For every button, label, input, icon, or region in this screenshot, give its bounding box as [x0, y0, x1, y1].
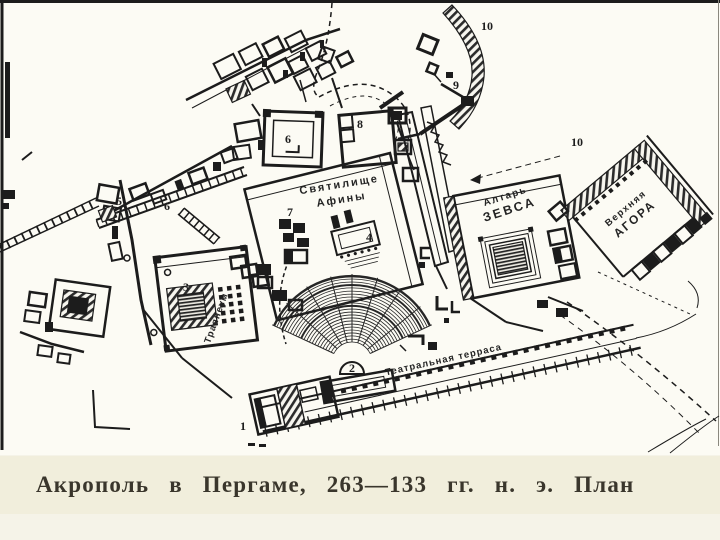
number-3: 3 [183, 280, 189, 294]
number-8: 8 [357, 117, 363, 131]
number-10-agora: 10 [571, 135, 583, 149]
number-6b: 6 [285, 132, 291, 146]
number-5: 5 [116, 194, 122, 208]
caption-bar: Акрополь в Пергаме, 263—133 гг. н. э. Пл… [0, 456, 720, 514]
number-6a: 6 [164, 199, 170, 213]
wall-fragment [258, 140, 264, 150]
number-10-wall: 10 [481, 19, 493, 33]
number-4: 4 [366, 230, 372, 244]
number-1: 1 [240, 419, 246, 433]
number-7: 7 [287, 205, 293, 219]
number-2: 2 [349, 361, 355, 375]
site-plan-svg: 3 Траянеум [0, 0, 720, 455]
wall-fragment [259, 444, 266, 447]
wall-fragment [248, 443, 255, 446]
pergamon-acropolis-plan: 3 Траянеум [0, 0, 720, 455]
scanned-book-page: 3 Траянеум [0, 0, 720, 540]
caption-text: Акрополь в Пергаме, 263—133 гг. н. э. Пл… [36, 472, 634, 498]
number-9: 9 [453, 78, 459, 92]
